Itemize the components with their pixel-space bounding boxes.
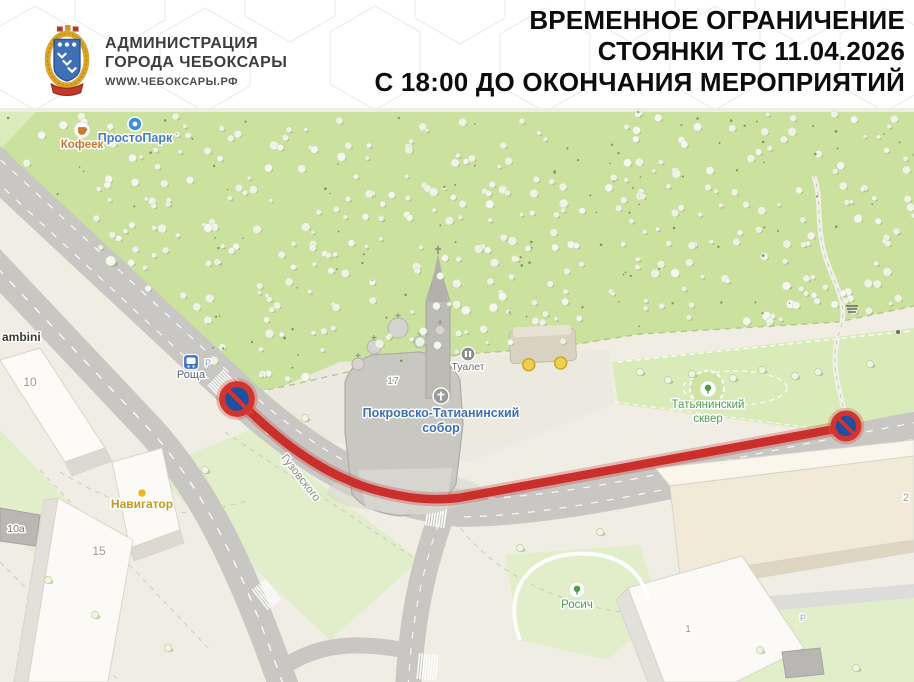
tree — [405, 195, 411, 201]
tree-dot — [623, 274, 625, 276]
tree — [227, 196, 232, 201]
tree — [559, 183, 567, 191]
tree — [152, 225, 157, 230]
tree-dot — [508, 311, 510, 313]
tree — [893, 229, 899, 235]
tree — [484, 247, 491, 254]
tree — [204, 224, 213, 233]
tree-dot — [730, 119, 733, 122]
tree — [247, 176, 251, 180]
tree — [537, 131, 542, 136]
tree-dot — [632, 187, 634, 189]
tree — [277, 144, 283, 150]
tree — [458, 118, 466, 126]
tree — [96, 186, 101, 191]
tree — [515, 257, 520, 262]
tree-dot — [816, 195, 818, 197]
tree — [285, 376, 291, 382]
tree — [737, 230, 743, 236]
tree — [788, 127, 797, 136]
tree — [480, 325, 488, 333]
tree — [458, 215, 463, 220]
tree — [611, 291, 615, 295]
lawn-tree — [791, 372, 798, 379]
tree-dot — [329, 193, 330, 194]
tree — [623, 159, 631, 167]
tree-icon — [700, 381, 716, 397]
big-tree — [105, 256, 115, 266]
tree — [278, 251, 285, 258]
no-parking-sign-left — [216, 378, 258, 420]
tree-dot — [361, 262, 363, 264]
tree — [621, 242, 626, 247]
tree — [865, 307, 872, 314]
tree — [508, 274, 514, 280]
tree — [713, 189, 718, 194]
tree — [792, 301, 800, 309]
tree — [811, 275, 816, 280]
tree — [839, 182, 847, 190]
tree — [362, 214, 369, 221]
tree — [693, 123, 701, 131]
tree — [380, 201, 386, 207]
tree — [610, 174, 617, 181]
tree-dot — [215, 237, 217, 239]
tree-dot — [762, 254, 765, 257]
tree — [652, 169, 656, 173]
tree — [849, 200, 853, 204]
tree — [193, 303, 201, 311]
tree — [624, 178, 629, 183]
tree — [767, 145, 773, 151]
tree-dot — [589, 194, 591, 196]
tree-dot — [291, 367, 293, 369]
tree — [500, 234, 507, 241]
tree — [165, 201, 171, 207]
poi-gambini: ambini — [2, 330, 41, 344]
tree — [23, 159, 31, 167]
tree — [162, 247, 169, 254]
tree — [743, 201, 750, 208]
lawn-tree — [688, 370, 695, 377]
tree — [217, 156, 223, 162]
restriction-title-line2: СТОЯНКИ ТС 11.04.2026 — [375, 36, 906, 67]
tree — [800, 242, 806, 248]
org-name-line1: АДМИНИСТРАЦИЯ — [105, 34, 287, 53]
tree — [543, 137, 548, 142]
tree-dot — [763, 162, 765, 164]
tree — [123, 229, 128, 234]
tree-dot — [577, 159, 579, 161]
tree — [777, 203, 781, 207]
org-site: WWW.ЧЕБОКСАРЫ.РФ — [105, 76, 287, 88]
tree — [172, 113, 179, 120]
tree — [620, 197, 627, 204]
tree — [651, 269, 660, 278]
restriction-title-line3: С 18:00 ДО ОКОНЧАНИЯ МЕРОПРИЯТИЙ — [375, 67, 906, 98]
tree — [767, 322, 771, 326]
tree — [542, 311, 548, 317]
tree — [507, 339, 513, 345]
tree — [416, 337, 425, 346]
tree-dot — [637, 111, 639, 113]
poi-kofeek: Кофеек — [61, 139, 104, 151]
lawn-tree — [91, 611, 98, 618]
parking-mark-strip: Р — [800, 613, 806, 623]
tree — [180, 292, 187, 299]
tree — [128, 259, 135, 266]
tree-dot — [736, 169, 738, 171]
tree-dot — [673, 227, 676, 230]
tree — [489, 181, 496, 188]
tree-dot — [835, 130, 838, 133]
tree — [286, 127, 292, 133]
tree — [433, 302, 440, 309]
tree — [530, 189, 539, 198]
tree — [128, 154, 136, 162]
tree — [455, 330, 461, 336]
tree — [733, 238, 740, 245]
tree — [257, 291, 261, 295]
tree — [860, 187, 865, 192]
tree — [406, 214, 413, 221]
tree-dot — [835, 225, 838, 228]
tree — [765, 112, 769, 116]
tree — [186, 176, 194, 184]
tree-dot — [520, 264, 523, 267]
tree — [343, 215, 348, 220]
tree-dot — [164, 119, 167, 122]
tree-dot — [814, 153, 817, 156]
tree — [682, 286, 687, 291]
tree — [902, 166, 910, 174]
tree — [563, 289, 569, 295]
tree — [139, 155, 143, 159]
tree-dot — [756, 121, 758, 123]
tree — [290, 264, 296, 270]
restriction-title: ВРЕМЕННОЕ ОГРАНИЧЕНИЕ СТОЯНКИ ТС 11.04.2… — [375, 5, 906, 98]
tree-dot — [57, 193, 59, 195]
tree — [336, 117, 343, 124]
bus-icon-wheel — [187, 365, 189, 367]
tree — [107, 198, 111, 202]
tree — [811, 292, 817, 298]
tree — [885, 240, 891, 246]
lawn-tree — [516, 544, 523, 551]
tree-dot — [215, 316, 217, 318]
tree — [311, 230, 315, 234]
tree — [550, 229, 558, 237]
tree-dot — [212, 347, 214, 349]
tree — [131, 178, 139, 186]
tree-icon — [569, 582, 585, 598]
tree-glyph — [705, 385, 711, 391]
tree — [365, 156, 369, 160]
tree — [219, 343, 226, 350]
tree — [316, 210, 321, 215]
tree — [678, 205, 684, 211]
tree — [228, 247, 235, 254]
tree-dot — [617, 152, 619, 154]
tree — [635, 158, 643, 166]
tree — [658, 159, 663, 164]
tree — [154, 164, 160, 170]
tree — [333, 252, 338, 257]
tree — [447, 302, 451, 306]
tree — [205, 294, 214, 303]
tree — [419, 327, 427, 335]
tree-dot — [251, 341, 253, 343]
tree — [497, 164, 501, 168]
tree — [285, 278, 293, 286]
tree — [755, 149, 762, 156]
tree-dot — [283, 337, 286, 340]
tree — [461, 306, 470, 315]
tree — [747, 155, 755, 163]
tree — [451, 159, 459, 167]
tree — [780, 136, 787, 143]
tree — [419, 245, 424, 250]
tree — [883, 267, 892, 276]
tree — [234, 130, 242, 138]
tree-dot — [762, 141, 765, 144]
tree — [635, 264, 641, 270]
tree — [709, 239, 714, 244]
tree — [297, 165, 305, 173]
tree — [719, 203, 723, 207]
bldg-num-2: 2 — [903, 492, 909, 504]
tree-dot — [613, 180, 615, 182]
tree — [434, 341, 442, 349]
poi-navigator: Навигатор — [111, 497, 173, 511]
tree-dot — [7, 117, 10, 120]
tree — [264, 317, 270, 323]
tree — [873, 280, 881, 288]
tree-dot — [454, 184, 456, 186]
tree — [456, 153, 461, 158]
tree-dot — [717, 246, 719, 248]
tree — [279, 332, 284, 337]
tree-dot — [638, 325, 640, 327]
tree-dot — [227, 189, 228, 190]
tree — [485, 341, 489, 345]
tree — [409, 139, 414, 144]
tree — [700, 274, 704, 278]
tree — [576, 315, 582, 321]
tree-dot — [371, 279, 373, 281]
lawn-tree — [758, 366, 765, 373]
tree-dot — [762, 312, 764, 314]
tree — [725, 279, 730, 284]
tree — [311, 331, 316, 336]
tree — [463, 159, 469, 165]
tree — [884, 148, 890, 154]
tree-dot — [338, 231, 340, 233]
tree — [539, 319, 546, 326]
tree-dot — [600, 243, 603, 246]
tree — [366, 143, 371, 148]
truck-wheel — [522, 358, 535, 371]
tree — [632, 136, 639, 143]
tree-dot — [639, 204, 641, 206]
announcement-poster: АДМИНИСТРАЦИЯ ГОРОДА ЧЕБОКСАРЫ WWW.ЧЕБОК… — [0, 0, 914, 682]
tree — [803, 275, 810, 282]
tree — [414, 267, 421, 274]
tree — [706, 166, 714, 174]
tree — [304, 128, 308, 132]
tree — [115, 235, 121, 241]
tree-dot — [566, 147, 568, 149]
tree-dot — [763, 226, 765, 228]
poi-sobor-line2: собор — [422, 421, 460, 435]
tree-dot — [291, 328, 293, 330]
tree — [429, 187, 438, 196]
tree — [441, 255, 448, 262]
tree — [253, 225, 261, 233]
tree — [144, 197, 148, 201]
tree — [132, 246, 139, 253]
tree-dot — [682, 176, 684, 178]
tree — [331, 325, 336, 330]
tree — [489, 303, 498, 312]
tree — [490, 258, 499, 267]
tree-dot — [520, 256, 522, 258]
cathedral-dome — [352, 358, 364, 370]
tree-dot — [219, 315, 221, 317]
tree — [328, 267, 335, 274]
lawn-tree — [301, 414, 308, 421]
tree — [249, 186, 257, 194]
tree-dot — [625, 271, 627, 273]
lawn-tree — [756, 646, 763, 653]
tree-dot — [658, 268, 660, 270]
lawn-tree — [636, 368, 643, 375]
poi-sobor-line1: Покровско-Татианинский — [363, 406, 520, 420]
tree — [409, 337, 413, 341]
tree — [341, 269, 349, 277]
tree — [508, 237, 517, 246]
tree — [455, 350, 460, 355]
tree — [842, 298, 849, 305]
tree — [38, 131, 46, 139]
lawn-tree — [664, 376, 671, 383]
tree — [890, 115, 898, 123]
tree — [365, 190, 373, 198]
tree — [59, 121, 67, 129]
tree — [425, 128, 429, 132]
wc-icon — [461, 347, 475, 361]
tree — [903, 156, 908, 161]
tree — [375, 339, 384, 348]
tree — [657, 260, 665, 268]
tree — [145, 285, 151, 291]
tree-dot — [743, 125, 745, 127]
tree — [863, 135, 867, 139]
tree — [655, 227, 659, 231]
tree — [872, 196, 877, 201]
tree — [204, 147, 212, 155]
tree — [671, 209, 679, 217]
tree — [822, 284, 828, 290]
tree — [452, 279, 461, 288]
tree — [464, 330, 468, 334]
tree-dot — [455, 241, 457, 243]
tree — [837, 162, 845, 170]
tree — [875, 218, 881, 224]
tree — [790, 115, 797, 122]
tree — [672, 169, 681, 178]
tree — [685, 259, 693, 267]
tree — [142, 265, 147, 270]
tree — [698, 212, 703, 217]
tree — [635, 257, 640, 262]
poi-prostopark: ПростоПарк — [98, 131, 173, 145]
tree — [731, 189, 738, 196]
tree — [519, 212, 523, 216]
tree — [266, 297, 272, 303]
tree — [783, 240, 791, 248]
tree — [532, 317, 539, 324]
tree — [904, 195, 911, 202]
bldg-num-10: 10 — [23, 375, 37, 389]
tree-glyph — [574, 586, 580, 592]
tree — [379, 237, 383, 241]
tree-dot — [871, 203, 873, 205]
transit-stop-roscha: Роща — [177, 369, 206, 381]
lawn-tree — [814, 368, 821, 375]
poi-tualet: Туалет — [451, 361, 484, 373]
tree-dot — [672, 302, 674, 304]
tree — [388, 192, 395, 199]
cross-icon — [433, 388, 449, 404]
tree — [161, 180, 169, 188]
tree — [615, 205, 622, 212]
tree — [274, 302, 281, 309]
tree — [760, 253, 768, 261]
tree — [311, 146, 318, 153]
bldg-num-1: 1 — [685, 623, 691, 635]
tree — [644, 299, 648, 303]
tree — [705, 184, 712, 191]
tree — [500, 142, 507, 149]
tree-dot — [812, 125, 814, 127]
poi-icon-bg — [461, 347, 475, 361]
tree — [185, 132, 191, 138]
tree — [864, 279, 873, 288]
tree — [217, 260, 222, 265]
tree — [291, 241, 296, 246]
tree — [221, 244, 226, 249]
tree-dot — [474, 123, 476, 125]
bldg-num-15: 15 — [92, 544, 106, 558]
tree — [487, 278, 494, 285]
tree — [345, 142, 352, 149]
lawn-tree — [729, 374, 736, 381]
tree — [93, 215, 100, 222]
tree — [894, 294, 902, 302]
lawn-tree — [44, 576, 51, 583]
tree-dot — [385, 317, 387, 319]
tree — [104, 182, 111, 189]
tree-dot — [297, 354, 299, 356]
tree — [688, 242, 696, 250]
tree-dot — [443, 186, 445, 188]
tree — [405, 146, 413, 154]
tree — [301, 372, 310, 381]
tree — [561, 208, 566, 213]
tree — [445, 216, 454, 225]
tree-dot — [609, 163, 610, 164]
